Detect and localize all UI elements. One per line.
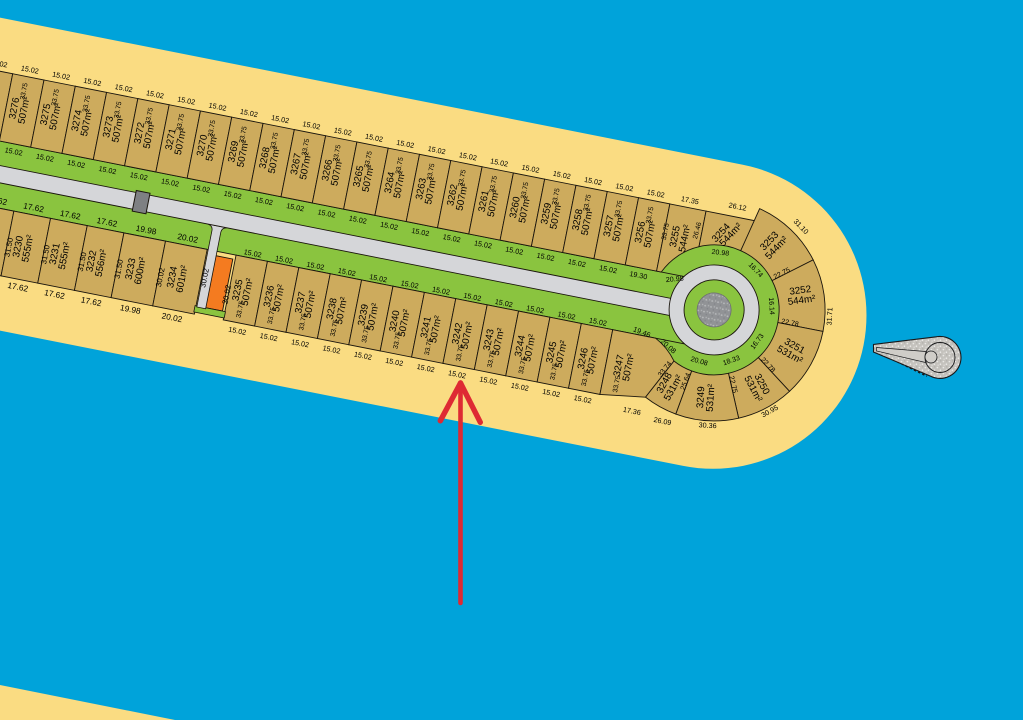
svg-text:16.14: 16.14 — [767, 297, 775, 315]
svg-text:531m²: 531m² — [705, 383, 718, 412]
svg-text:20.98: 20.98 — [665, 274, 684, 284]
svg-text:31.71: 31.71 — [824, 307, 834, 325]
svg-text:30.36: 30.36 — [698, 420, 716, 430]
